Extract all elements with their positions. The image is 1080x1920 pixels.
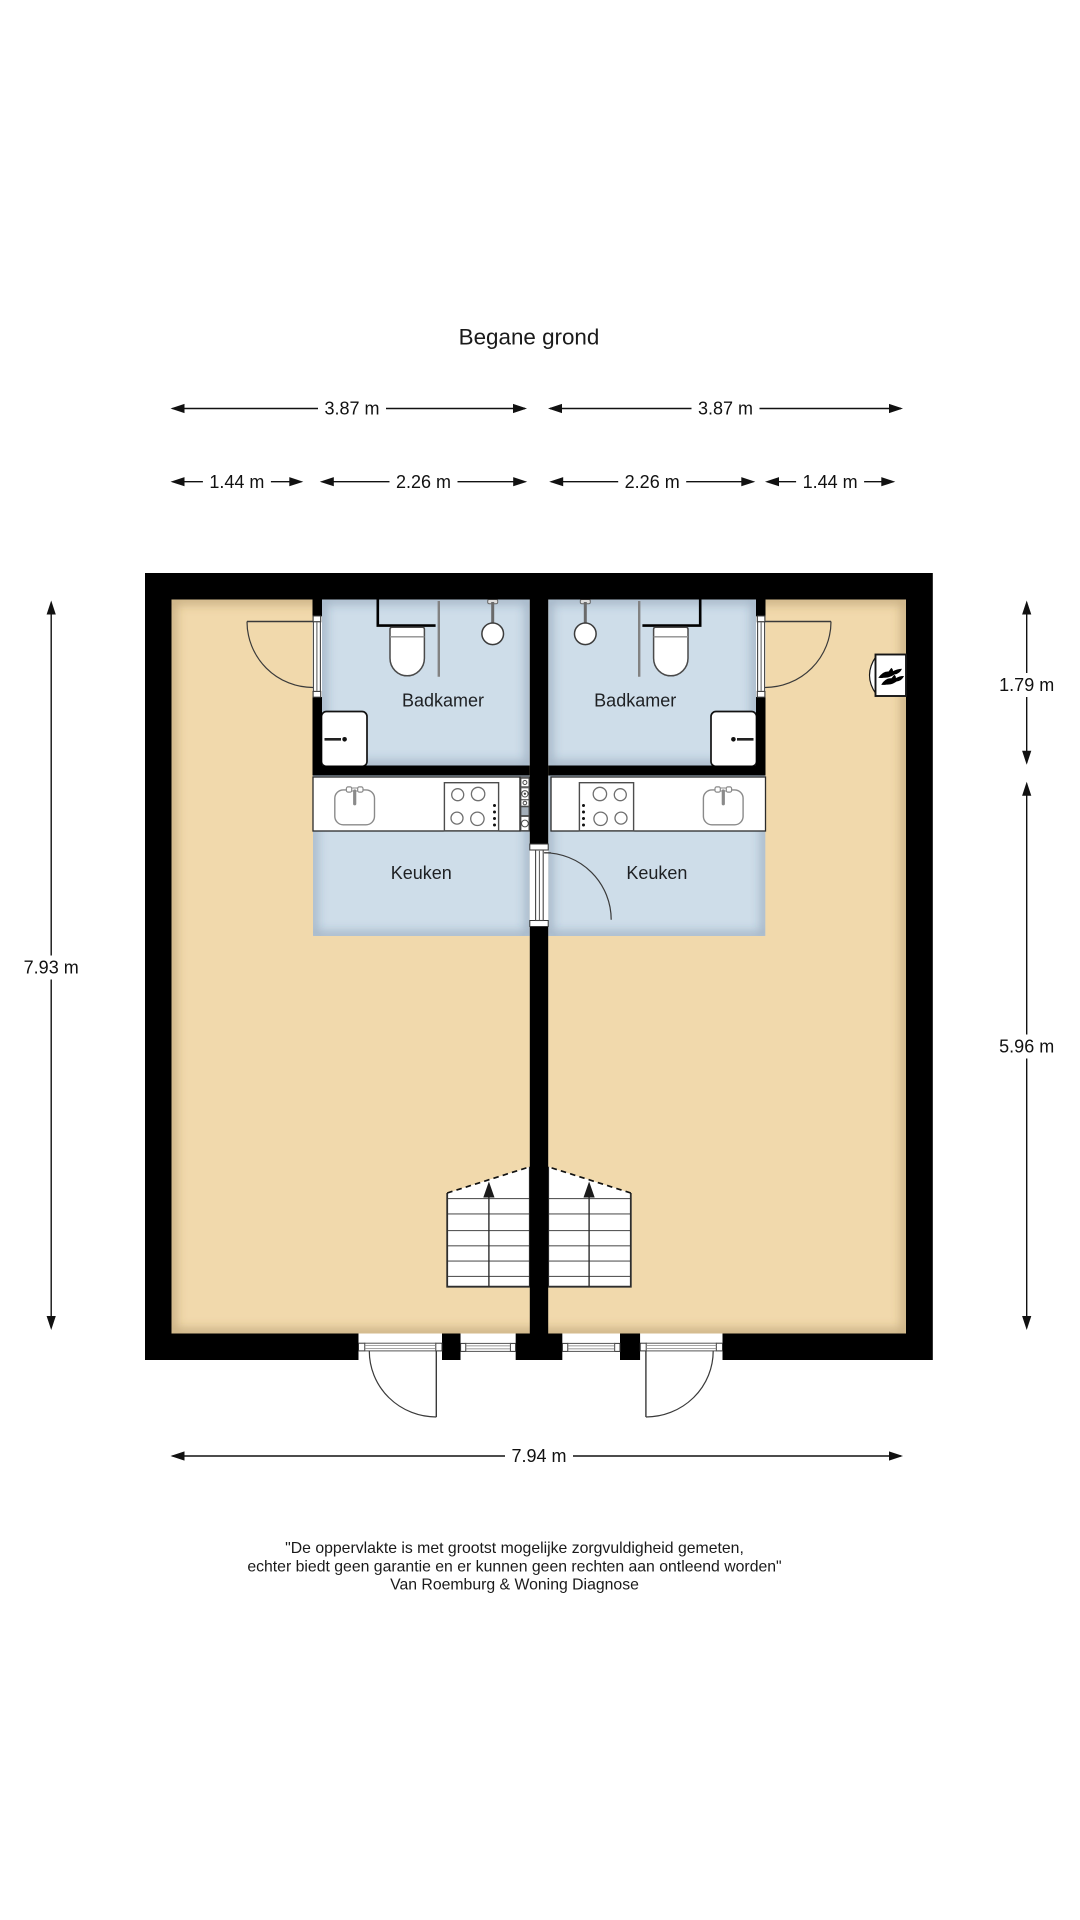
svg-text:"De oppervlakte is met grootst: "De oppervlakte is met grootst mogelijke… <box>285 1540 744 1557</box>
svg-text:Badkamer: Badkamer <box>594 691 676 711</box>
svg-text:Badkamer: Badkamer <box>402 691 484 711</box>
svg-text:5.96 m: 5.96 m <box>999 1037 1054 1057</box>
svg-text:echter biedt geen garantie en: echter biedt geen garantie en er kunnen … <box>247 1559 781 1576</box>
svg-text:7.93 m: 7.93 m <box>24 958 79 978</box>
svg-text:Van Roemburg & Woning Diagnose: Van Roemburg & Woning Diagnose <box>390 1576 639 1593</box>
svg-text:7.94 m: 7.94 m <box>511 1446 566 1466</box>
svg-text:Keuken: Keuken <box>626 863 687 883</box>
svg-text:Keuken: Keuken <box>391 863 452 883</box>
svg-text:2.26 m: 2.26 m <box>396 472 451 492</box>
svg-text:2.26 m: 2.26 m <box>625 472 680 492</box>
svg-text:3.87 m: 3.87 m <box>324 399 379 419</box>
svg-text:Begane grond: Begane grond <box>459 325 600 350</box>
svg-text:1.44 m: 1.44 m <box>803 472 858 492</box>
svg-text:1.44 m: 1.44 m <box>209 472 264 492</box>
svg-text:3.87 m: 3.87 m <box>698 399 753 419</box>
svg-text:1.79 m: 1.79 m <box>999 675 1054 695</box>
